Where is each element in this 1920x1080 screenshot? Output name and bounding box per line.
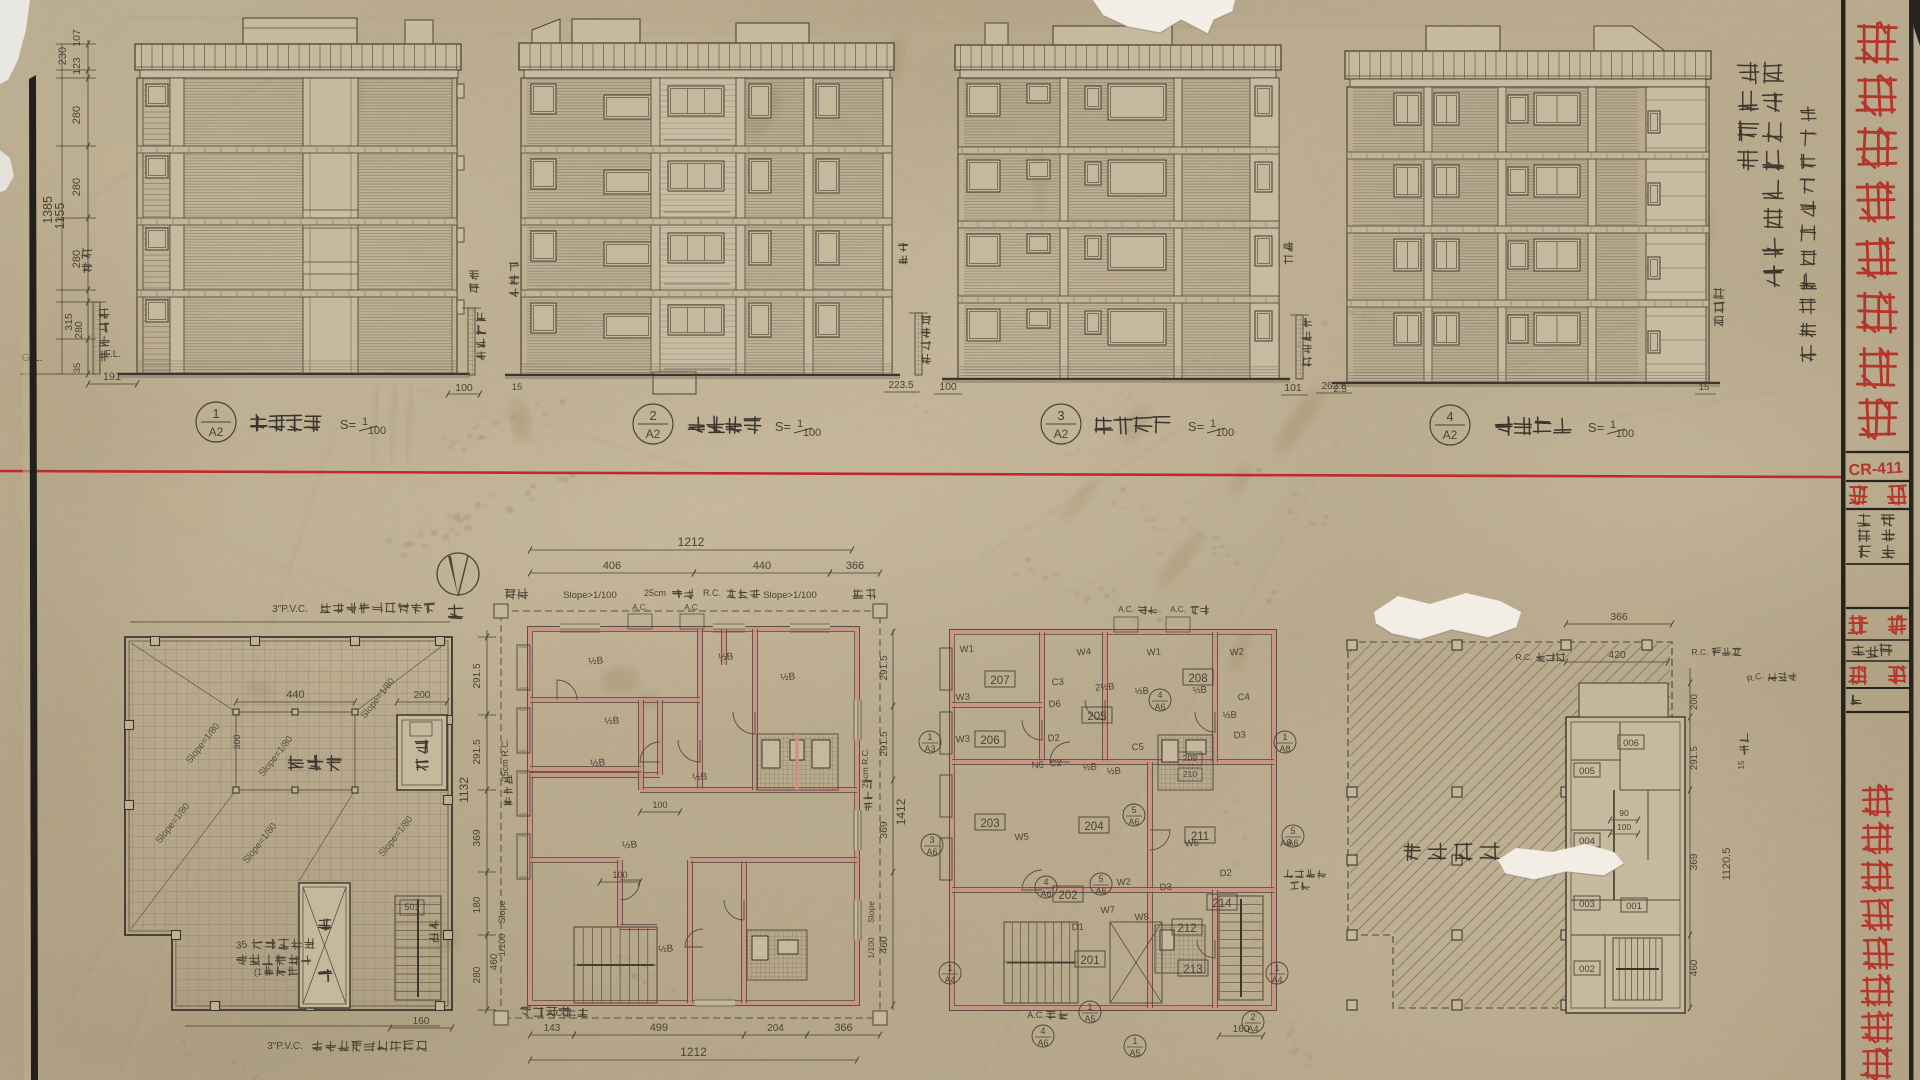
svg-text:W3: W3	[955, 692, 970, 704]
svg-text:½B: ½B	[1134, 686, 1149, 698]
svg-text:420: 420	[1608, 649, 1626, 661]
svg-text:A.C.: A.C.	[632, 603, 648, 612]
svg-text:W2: W2	[1116, 877, 1131, 889]
svg-text:223.5: 223.5	[888, 380, 913, 391]
svg-text:203: 203	[980, 818, 999, 830]
svg-text:5: 5	[1290, 826, 1295, 836]
svg-text:205: 205	[1087, 711, 1106, 723]
svg-text:Slope: Slope	[866, 901, 876, 923]
svg-text:25cm R.C.: 25cm R.C.	[860, 748, 870, 788]
svg-text:A2: A2	[646, 427, 661, 441]
svg-text:208: 208	[1188, 673, 1207, 685]
svg-text:209: 209	[1183, 753, 1197, 763]
svg-text:366: 366	[1610, 611, 1628, 623]
svg-text:202: 202	[1058, 890, 1077, 902]
svg-text:A.C.: A.C.	[1118, 605, 1134, 614]
svg-text:214: 214	[1212, 898, 1232, 910]
svg-text:001: 001	[1626, 901, 1642, 912]
svg-text:1155: 1155	[53, 203, 67, 230]
svg-text:½B: ½B	[590, 757, 606, 769]
svg-text:3"P.V.C.: 3"P.V.C.	[267, 1041, 303, 1052]
svg-text:CR-411: CR-411	[1848, 460, 1903, 480]
svg-text:1: 1	[1087, 1002, 1092, 1012]
svg-text:½B: ½B	[604, 715, 620, 727]
svg-text:W1: W1	[1146, 647, 1161, 659]
svg-text:S=: S=	[340, 417, 356, 432]
svg-text:A6: A6	[1287, 838, 1298, 848]
svg-text:003: 003	[1579, 899, 1595, 910]
svg-text:4: 4	[1043, 877, 1048, 887]
svg-text:1132: 1132	[457, 777, 471, 803]
svg-text:3"P.V.C.: 3"P.V.C.	[272, 604, 308, 615]
svg-text:300: 300	[232, 734, 242, 749]
svg-text:100: 100	[803, 427, 821, 439]
svg-text:A8: A8	[1279, 744, 1290, 754]
svg-text:Slope>1/100: Slope>1/100	[563, 590, 617, 601]
svg-text:005: 005	[1579, 766, 1595, 777]
svg-text:204: 204	[1084, 821, 1104, 833]
svg-text:(1: (1	[254, 967, 262, 977]
svg-text:½B: ½B	[1222, 710, 1237, 722]
svg-text:½B: ½B	[588, 655, 604, 667]
svg-text:90: 90	[1619, 808, 1629, 818]
svg-text:280: 280	[71, 178, 83, 196]
svg-text:4: 4	[1157, 690, 1162, 700]
svg-text:006: 006	[1623, 738, 1639, 749]
svg-text:180: 180	[472, 896, 483, 913]
svg-text:460: 460	[878, 936, 890, 954]
svg-text:D1: D1	[1071, 922, 1084, 934]
svg-text:460: 460	[1689, 959, 1700, 976]
svg-text:100: 100	[455, 382, 473, 394]
svg-text:1212: 1212	[680, 1045, 707, 1059]
svg-text:213: 213	[1183, 964, 1202, 976]
svg-text:Slope: Slope	[497, 900, 507, 923]
svg-text:280: 280	[71, 250, 83, 268]
svg-text:D2: D2	[1219, 868, 1232, 880]
svg-text:A.C.: A.C.	[1170, 605, 1186, 614]
svg-text:½B: ½B	[1106, 766, 1121, 778]
svg-text:207: 207	[990, 675, 1009, 687]
svg-text:½B: ½B	[692, 771, 708, 783]
svg-text:W8: W8	[1134, 912, 1149, 924]
svg-text:291.5: 291.5	[472, 739, 483, 764]
svg-text:100: 100	[1216, 427, 1234, 439]
svg-text:A4: A4	[944, 975, 955, 985]
svg-text:2: 2	[1250, 1012, 1255, 1022]
svg-text:100: 100	[939, 381, 957, 393]
svg-text:2.5: 2.5	[1333, 384, 1346, 395]
svg-text:1: 1	[947, 963, 952, 973]
svg-text:A5: A5	[1129, 1048, 1140, 1058]
svg-text:A2: A2	[1054, 427, 1069, 441]
svg-text:501: 501	[404, 902, 419, 912]
svg-text:101: 101	[1284, 382, 1302, 394]
svg-text:460: 460	[489, 953, 500, 970]
svg-text:A2: A2	[1443, 428, 1458, 442]
svg-text:160: 160	[413, 1016, 430, 1027]
svg-text:100: 100	[1617, 822, 1631, 832]
svg-text:1: 1	[1132, 1036, 1137, 1046]
svg-text:1412: 1412	[894, 798, 908, 825]
svg-text:W3: W3	[955, 734, 970, 746]
svg-text:35: 35	[235, 939, 248, 952]
svg-text:212: 212	[1177, 923, 1196, 935]
svg-text:15: 15	[1699, 382, 1710, 393]
svg-text:1120.5: 1120.5	[1721, 848, 1733, 881]
svg-text:R.C.: R.C.	[1692, 647, 1709, 657]
svg-text:291.5: 291.5	[472, 663, 483, 688]
svg-text:369: 369	[1689, 853, 1700, 870]
svg-text:D2: D2	[1047, 733, 1060, 745]
svg-text:123: 123	[71, 57, 83, 75]
svg-text:210: 210	[1183, 769, 1197, 779]
svg-text:A4: A4	[1271, 975, 1282, 985]
svg-text:291.5: 291.5	[879, 655, 890, 680]
svg-text:160: 160	[1233, 1024, 1250, 1035]
svg-text:D3: D3	[1233, 730, 1246, 742]
svg-text:A.C.: A.C.	[1027, 1010, 1045, 1020]
svg-text:½B: ½B	[718, 651, 734, 663]
svg-text:S=: S=	[775, 419, 791, 434]
svg-text:201: 201	[1080, 955, 1099, 967]
svg-text:002: 002	[1579, 964, 1595, 975]
svg-text:1: 1	[927, 732, 932, 742]
svg-text:200: 200	[414, 690, 431, 701]
svg-text:A6: A6	[1154, 702, 1165, 712]
svg-text:280: 280	[71, 106, 83, 124]
svg-text:100: 100	[368, 425, 386, 437]
svg-text:C5: C5	[1131, 742, 1144, 754]
svg-text:A6: A6	[1095, 886, 1106, 896]
svg-text:291.5: 291.5	[1689, 746, 1700, 770]
svg-text:204: 204	[767, 1023, 784, 1034]
svg-text:1: 1	[1274, 963, 1279, 973]
svg-text:280: 280	[472, 966, 483, 983]
svg-text:A6: A6	[926, 847, 937, 857]
svg-text:230: 230	[57, 47, 69, 65]
svg-text:406: 406	[603, 560, 621, 572]
svg-text:35: 35	[72, 363, 83, 374]
svg-text:Slope>1/100: Slope>1/100	[763, 590, 817, 601]
svg-text:A.C.: A.C.	[684, 603, 700, 612]
svg-text:291.5: 291.5	[879, 731, 890, 756]
svg-text:100: 100	[1616, 428, 1634, 440]
svg-text:½B: ½B	[1082, 762, 1097, 774]
svg-text:W2: W2	[1229, 647, 1244, 659]
svg-text:A3: A3	[924, 744, 935, 754]
svg-text:A5: A5	[1084, 1014, 1095, 1024]
svg-text:1: 1	[212, 406, 219, 421]
svg-text:5: 5	[1098, 874, 1103, 884]
svg-text:366: 366	[834, 1022, 852, 1034]
svg-text:A6: A6	[1128, 817, 1139, 827]
svg-text:½B: ½B	[658, 943, 674, 955]
svg-text:S=: S=	[1588, 420, 1604, 435]
svg-text:2: 2	[649, 408, 656, 423]
svg-text:A2: A2	[209, 425, 224, 439]
svg-text:1: 1	[1282, 732, 1287, 742]
svg-text:½B: ½B	[1192, 685, 1207, 697]
svg-text:4: 4	[1040, 1026, 1045, 1036]
svg-text:1/100: 1/100	[497, 934, 507, 957]
svg-text:143: 143	[544, 1023, 561, 1034]
svg-text:200: 200	[1689, 694, 1700, 710]
svg-text:3: 3	[929, 835, 934, 845]
svg-text:191: 191	[103, 371, 121, 383]
svg-text:499: 499	[650, 1022, 668, 1034]
svg-text:440: 440	[753, 560, 771, 572]
svg-text:W4: W4	[1076, 647, 1091, 659]
svg-text:369: 369	[878, 821, 890, 839]
svg-text:S=: S=	[1188, 419, 1204, 434]
svg-text:100: 100	[612, 870, 627, 880]
svg-text:D6: D6	[1048, 699, 1061, 711]
svg-text:R.C.: R.C.	[703, 588, 721, 598]
svg-text:W5: W5	[1014, 832, 1029, 844]
svg-text:366: 366	[846, 560, 864, 572]
svg-text:15: 15	[1737, 760, 1746, 769]
svg-text:3: 3	[1057, 408, 1064, 423]
svg-text:5: 5	[1131, 805, 1136, 815]
svg-text:15: 15	[512, 382, 523, 393]
svg-text:1/100: 1/100	[866, 937, 876, 959]
svg-text:C4: C4	[1237, 692, 1250, 704]
svg-text:A6: A6	[1037, 1038, 1048, 1048]
svg-text:440: 440	[286, 689, 304, 701]
svg-text:2½B: 2½B	[1095, 681, 1115, 693]
svg-text:½B: ½B	[780, 671, 796, 683]
svg-text:C3: C3	[1051, 677, 1064, 689]
svg-text:25cm: 25cm	[644, 588, 666, 598]
svg-text:W7: W7	[1100, 905, 1115, 917]
svg-text:100: 100	[652, 800, 667, 810]
svg-text:107: 107	[71, 29, 83, 47]
svg-text:1212: 1212	[678, 535, 705, 549]
svg-text:W6: W6	[1184, 838, 1199, 850]
svg-text:A6: A6	[1040, 889, 1051, 899]
svg-text:W1: W1	[959, 644, 974, 656]
svg-text:206: 206	[980, 735, 999, 747]
svg-text:C2: C2	[1049, 758, 1062, 770]
svg-text:4: 4	[1446, 409, 1453, 424]
svg-text:R.C.: R.C.	[1516, 652, 1533, 662]
svg-text:N6: N6	[1031, 760, 1044, 772]
svg-text:½B: ½B	[622, 839, 638, 851]
svg-text:D3: D3	[1159, 882, 1172, 894]
svg-text:280: 280	[73, 321, 85, 339]
svg-text:369: 369	[471, 829, 483, 847]
